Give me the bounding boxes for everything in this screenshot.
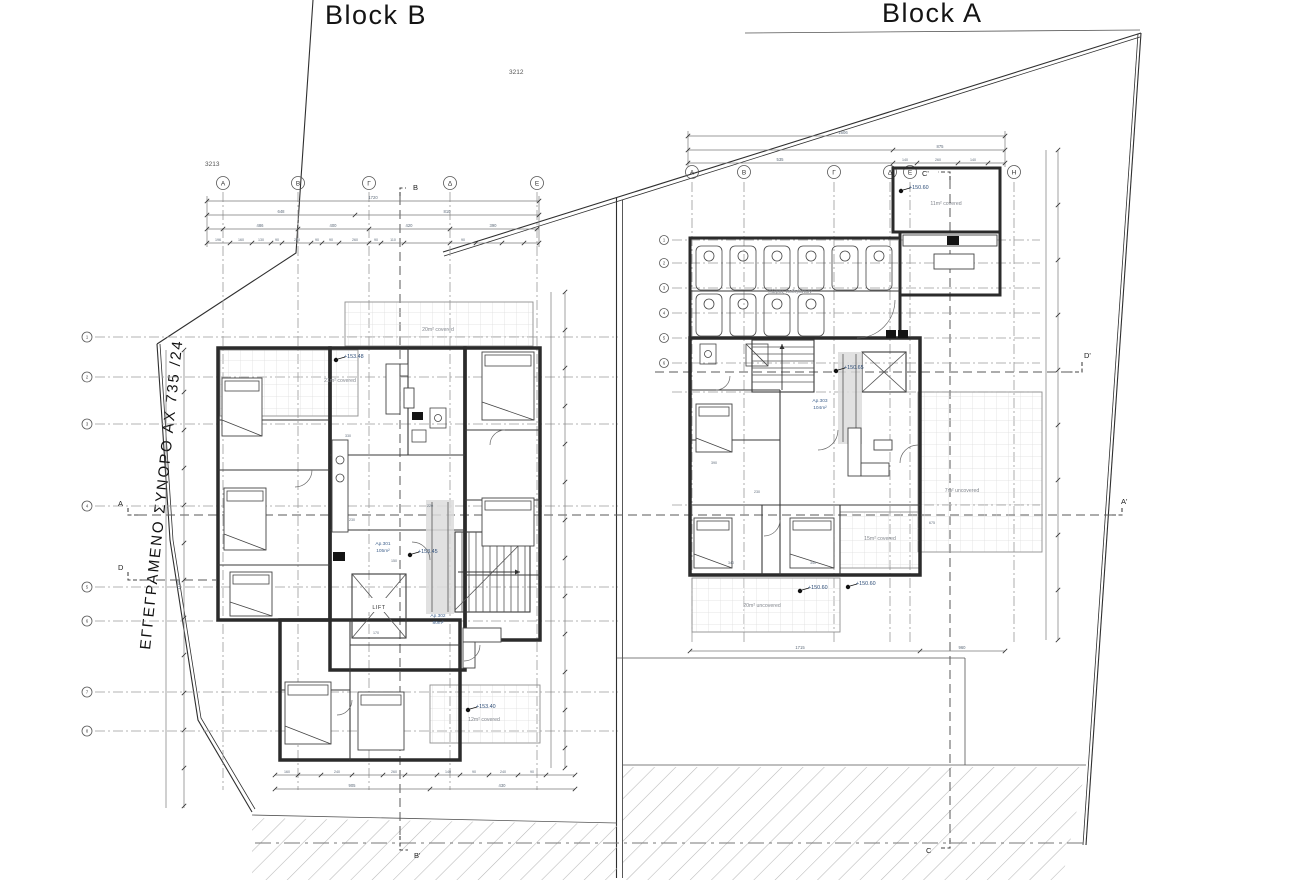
dim-inner: 170 xyxy=(373,631,379,635)
row-bubble-a: 2 xyxy=(663,261,666,266)
row-bubble: 2 xyxy=(86,375,89,380)
dim-b: 90 xyxy=(315,238,319,242)
level-marker-153-48: +153.48 xyxy=(344,354,364,360)
dim-b: 810 xyxy=(444,209,452,214)
registered-boundary-label: ΕΓΓΕΓΡΑΜΕΝΟ ΣΥΝΟΡΟ ΑΧ 735 /24 xyxy=(137,338,187,650)
lift-label: LIFT xyxy=(372,605,385,611)
dim-b: 196 xyxy=(215,238,221,242)
level-marker-150-60-top: +150.60 xyxy=(909,185,929,191)
dim-inner-a: 340 xyxy=(810,561,816,565)
dim-b: 90 xyxy=(461,238,465,242)
dim-inner: 220 xyxy=(427,504,433,508)
section-b-label: B xyxy=(413,183,418,192)
row-bubble: 4 xyxy=(86,504,89,509)
dim-a: 260 xyxy=(935,158,941,162)
dim-b: 905 xyxy=(349,783,357,788)
dim-b: 486 xyxy=(257,223,265,228)
area-label-20m2: 20m² covered xyxy=(422,327,454,333)
grid-bubble-a: Γ xyxy=(832,169,836,176)
section-a-prime-label: A' xyxy=(1121,497,1128,506)
dim-b: 390 xyxy=(490,223,498,228)
dim-b: 430 xyxy=(499,783,507,788)
dim-a: 875 xyxy=(937,144,945,149)
dim-b: 160 xyxy=(284,770,290,774)
section-c-label: C xyxy=(926,846,932,855)
dim-b: 240 xyxy=(500,770,506,774)
dim-total-b: 1720 xyxy=(368,195,378,200)
block-b-lift: LIFT xyxy=(352,574,406,638)
dim-inner-a: 675 xyxy=(929,521,935,525)
block-a-kitchen xyxy=(886,235,997,338)
level-marker-153-40: +153.40 xyxy=(476,704,496,710)
apartment-303-name: Ap.303 xyxy=(812,398,828,404)
dim-total-a: 1606 xyxy=(838,130,848,135)
grid-bubble-a: Η xyxy=(1012,169,1017,176)
dim-a: 140 xyxy=(902,158,908,162)
block-b-plan: LIFT xyxy=(218,302,540,760)
survey-point-3213: 3213 xyxy=(205,161,220,168)
dim-b: 648 xyxy=(278,209,286,214)
dim-b: 260 xyxy=(391,770,397,774)
dim-b: 90 xyxy=(530,770,534,774)
section-c-prime-label: C' xyxy=(922,169,929,178)
dim-b: 90 xyxy=(275,238,279,242)
floor-plan-canvas: Block B Block A 3212 3213 ΕΓΓΕΓΡΑΜΕΝΟ ΣΥ… xyxy=(0,0,1293,880)
area-label-12m2: 12m² covered xyxy=(468,717,500,723)
dim-a: 960 xyxy=(959,645,967,650)
dim-b: 420 xyxy=(406,223,414,228)
grid-bubble-b: Β xyxy=(296,180,300,187)
row-bubble: 6 xyxy=(86,619,89,624)
row-bubble-a: 3 xyxy=(663,286,666,291)
grid-bubble-a: Α xyxy=(690,169,695,176)
dim-inner: 230 xyxy=(349,518,355,522)
area-label-21m2: 21m² covered xyxy=(324,378,356,384)
grid-bubble-b: Γ xyxy=(367,180,371,187)
dim-b: 90 xyxy=(374,238,378,242)
apartment-303-area: 104m² xyxy=(813,405,827,411)
grid-bubble-a: Β xyxy=(742,169,746,176)
block-a-upper-unit-walls xyxy=(893,168,1000,232)
grid-bubble-b: Δ xyxy=(448,180,453,187)
row-bubble: 8 xyxy=(86,729,89,734)
section-a-label: A xyxy=(118,499,123,508)
row-bubble-a: 5 xyxy=(663,336,666,341)
dim-b: 240 xyxy=(294,238,300,242)
area-label-20m2-uncovered: 20m² uncovered xyxy=(743,603,781,609)
apartment-302-name: Ap.302 xyxy=(430,613,446,619)
dim-b: 160 xyxy=(238,238,244,242)
block-a-plan: Χώρος ποδηλάτων xyxy=(690,168,1042,632)
area-label-15m2: 15m² covered xyxy=(864,536,896,542)
dim-inner: 330 xyxy=(345,434,351,438)
row-grid-bubbles: 1 2 3 4 5 6 7 8 xyxy=(82,332,92,736)
balcony-20m2 xyxy=(345,302,533,346)
dim-inner-a: 340 xyxy=(728,561,734,565)
dim-b-left: 1148 xyxy=(176,580,181,590)
grid-bubble-b: Ε xyxy=(535,180,540,187)
dim-a: 535 xyxy=(777,157,785,162)
apartment-302-area: 80m² xyxy=(433,620,444,626)
level-marker-150-65: +150.65 xyxy=(844,365,864,371)
balcony-12m2 xyxy=(430,685,540,743)
row-bubble-a: 4 xyxy=(663,311,666,316)
dim-b: 130 xyxy=(258,238,264,242)
dim-b: 400 xyxy=(330,223,338,228)
level-marker-150-60-terrace-a: +150.60 xyxy=(808,585,828,591)
terrace-7m2 xyxy=(918,392,1042,552)
storage-room-label: Χώρος ποδηλάτων xyxy=(768,288,812,295)
row-bubble: 7 xyxy=(86,690,89,695)
dim-inner-a: 390 xyxy=(711,461,717,465)
dim-b: 110 xyxy=(390,238,396,242)
apartment-301-name: Ap.301 xyxy=(375,541,391,547)
row-bubble-a: 6 xyxy=(663,361,666,366)
apartment-301-area: 105m² xyxy=(376,548,390,554)
section-d-label: D xyxy=(118,563,124,572)
dim-b: 240 xyxy=(334,770,340,774)
dim-a: 140 xyxy=(970,158,976,162)
row-bubble: 3 xyxy=(86,422,89,427)
row-bubble-a: 1 xyxy=(663,238,666,243)
section-b-prime-label: B' xyxy=(414,851,421,860)
block-a-title: Block A xyxy=(882,0,983,28)
grid-bubble-a: Ε xyxy=(908,169,913,176)
dim-inner-a: 230 xyxy=(754,490,760,494)
dim-b: 90 xyxy=(329,238,333,242)
dim-inner: 150 xyxy=(391,559,397,563)
area-label-7m2: 7m² uncovered xyxy=(945,488,980,494)
area-label-11m2: 11m² covered xyxy=(930,201,961,207)
grid-bubble-b: Α xyxy=(221,180,226,187)
road-hatch-area xyxy=(252,767,1086,880)
drawing-sheet: Block B Block A 3212 3213 ΕΓΓΕΓΡΑΜΕΝΟ ΣΥ… xyxy=(0,0,1293,880)
row-bubble: 5 xyxy=(86,585,89,590)
block-b-title: Block B xyxy=(325,0,427,30)
dim-b: 140 xyxy=(445,770,451,774)
level-marker-150-60-terrace-b: +150.60 xyxy=(856,581,876,587)
section-d-prime-label: D' xyxy=(1084,351,1091,360)
level-marker-153-45: +153.45 xyxy=(418,549,438,555)
dim-b: 260 xyxy=(352,238,358,242)
row-bubble: 1 xyxy=(86,335,89,340)
survey-point-3212: 3212 xyxy=(509,69,524,76)
dim-a: 1715 xyxy=(795,645,805,650)
dim-b: 90 xyxy=(472,770,476,774)
ramp-hatch xyxy=(426,500,454,614)
